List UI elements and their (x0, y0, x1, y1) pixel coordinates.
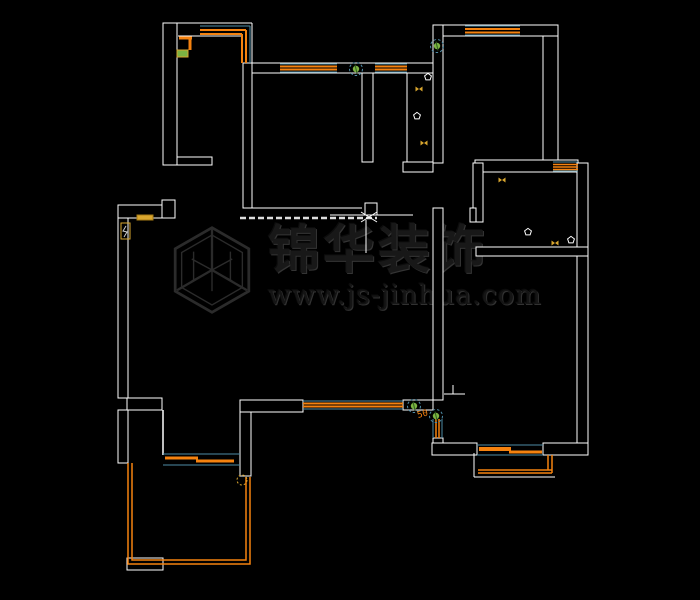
wall-band (403, 400, 433, 410)
entry-door-sill (177, 50, 188, 57)
wall-band (127, 398, 162, 410)
wall-band (543, 36, 558, 160)
balcony-railing (132, 463, 246, 560)
wall-band (476, 247, 588, 256)
wall-switch-panel (137, 215, 153, 220)
floorplan-canvas: 50 (0, 0, 700, 600)
fixture-yellow (502, 178, 506, 183)
wall-band (118, 410, 128, 463)
wall-band (362, 73, 373, 162)
wall-band (443, 25, 558, 36)
fixture-yellow (552, 241, 556, 246)
fixture-yellow (424, 141, 428, 146)
wall-band (177, 157, 212, 165)
fixture-white (425, 73, 432, 80)
fixture-yellow (421, 141, 425, 146)
wall-band (240, 400, 303, 412)
wall-band (577, 163, 588, 455)
wall-band (240, 412, 251, 476)
fixture-yellow (555, 241, 559, 246)
wall-band (433, 208, 443, 400)
fixture-white (525, 228, 532, 235)
balcony-railing (128, 463, 250, 564)
fixture-yellow (499, 178, 503, 183)
wall-band (163, 23, 177, 165)
wall-band (543, 443, 588, 455)
wall-band (403, 162, 433, 172)
fixture-yellow (419, 87, 423, 92)
wall-band (432, 443, 477, 455)
wall-band (470, 208, 476, 222)
fixture-white (568, 236, 575, 243)
cad-viewport: 锦华装饰 www.js-jinhua.com 50 (0, 0, 700, 600)
wall-band (118, 218, 128, 398)
wall-band (162, 200, 175, 218)
fixture-yellow (416, 87, 420, 92)
wall-band (243, 63, 252, 208)
fixture-white (414, 112, 421, 119)
